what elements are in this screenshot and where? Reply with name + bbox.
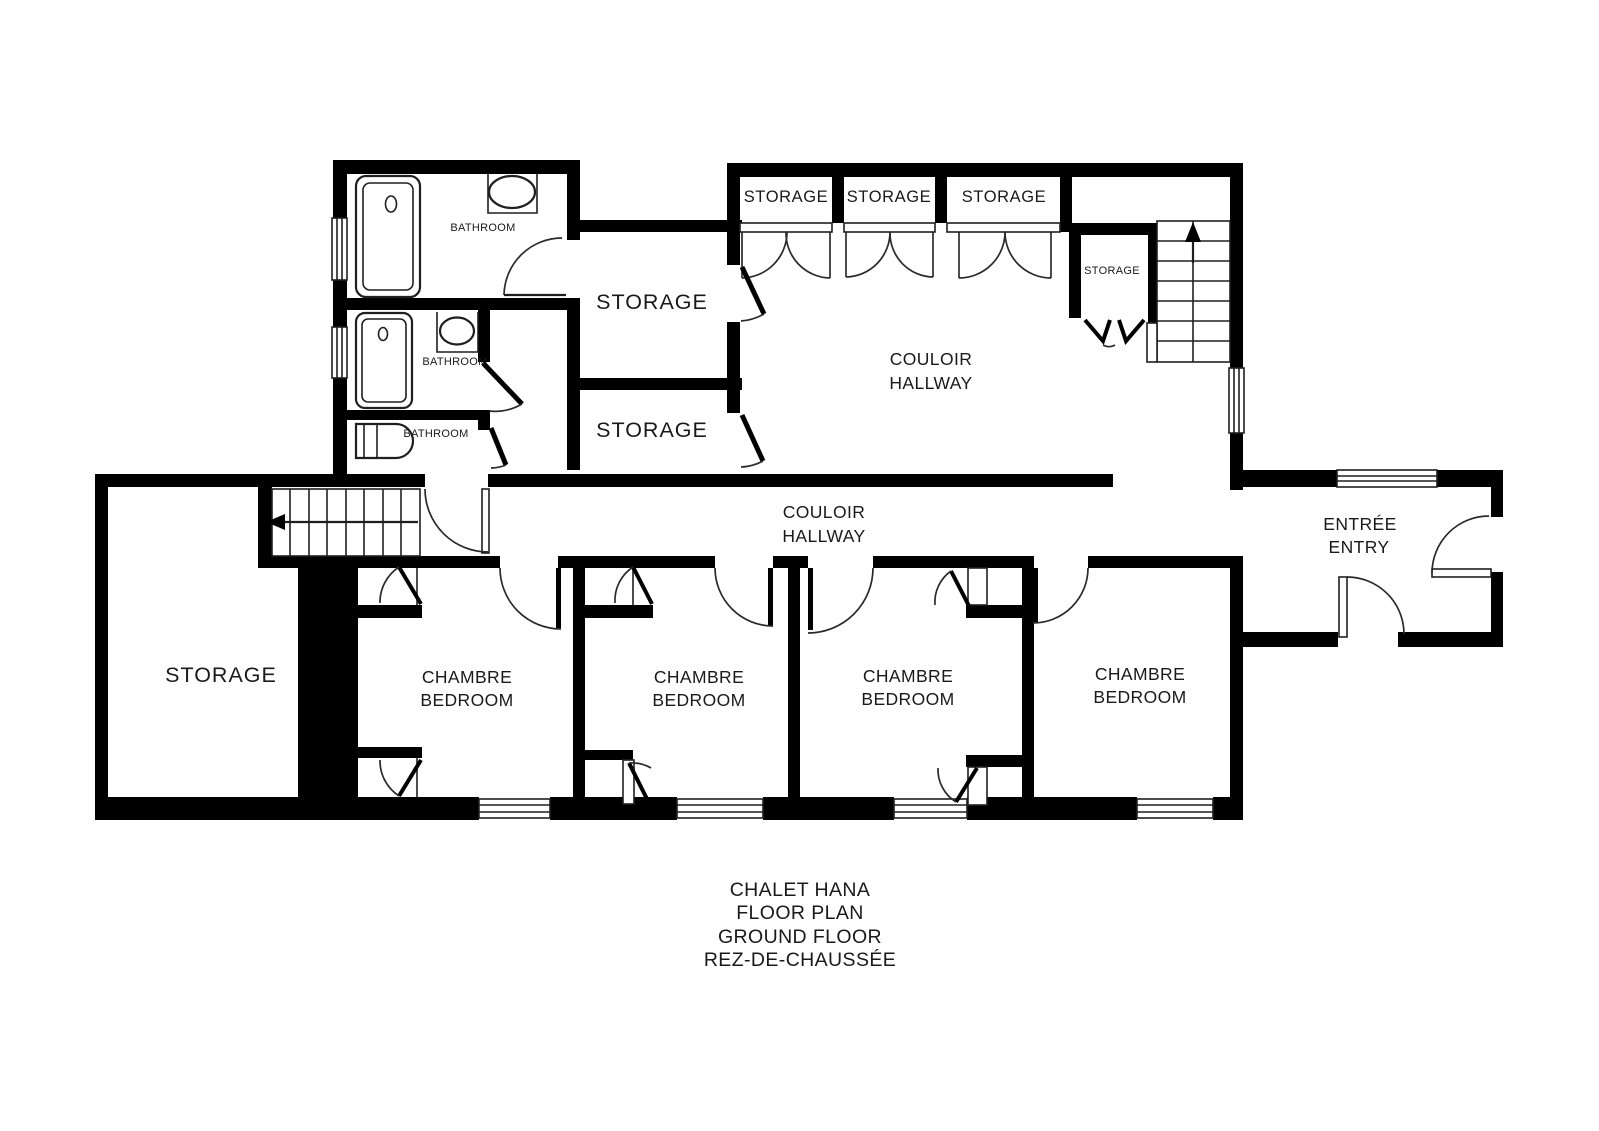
label-storage-lower: STORAGE xyxy=(596,418,708,442)
window-entry-top xyxy=(1337,470,1437,487)
label-entry-2: ENTRY xyxy=(1329,537,1390,557)
label-storage-left: STORAGE xyxy=(165,663,277,687)
bathtub-top xyxy=(356,176,420,297)
label-bathroom-middle: BATHROOM xyxy=(422,356,487,368)
title-line-1: CHALET HANA xyxy=(730,879,871,901)
bathroom-middle-door xyxy=(483,363,522,411)
label-bedroom-3-l2: BEDROOM xyxy=(861,689,954,709)
stair-jamb xyxy=(1147,323,1157,362)
title-line-2: FLOOR PLAN xyxy=(736,902,864,924)
label-bedroom-4-l2: BEDROOM xyxy=(1093,687,1186,707)
closet-2-double-door xyxy=(844,223,935,277)
label-hallway-upper-2: HALLWAY xyxy=(889,373,972,393)
small-storage-bifold-door xyxy=(1085,320,1144,347)
window-bedroom-2 xyxy=(677,799,763,818)
window-bedroom-1 xyxy=(479,799,550,818)
sink-top xyxy=(488,174,537,213)
label-bathroom-top: BATHROOM xyxy=(450,222,515,234)
window-bedroom-4 xyxy=(1137,799,1213,818)
label-entry-1: ENTRÉE xyxy=(1323,514,1396,534)
title-block: CHALET HANA FLOOR PLAN GROUND FLOOR REZ-… xyxy=(704,879,896,971)
stair-arrow-up xyxy=(1185,222,1201,242)
label-bedroom-2-l1: CHAMBRE xyxy=(654,667,744,687)
window-left-lower xyxy=(332,327,347,378)
stairs-main-hallway xyxy=(266,489,420,556)
label-closet-1: STORAGE xyxy=(744,188,829,206)
storage-upper-door xyxy=(741,267,764,321)
title-line-3: GROUND FLOOR xyxy=(718,926,882,948)
closet-3-double-door xyxy=(947,223,1060,278)
floor-plan-page: BATHROOM BATHROOM BATHROOM STORAGE STORA… xyxy=(0,0,1599,1131)
label-bedroom-4-l1: CHAMBRE xyxy=(1095,664,1185,684)
bedroom-2-closet-doors xyxy=(615,567,652,804)
bedroom-4-door xyxy=(1033,568,1088,623)
hallway-corridor-door xyxy=(425,489,489,553)
entry-front-door xyxy=(1432,516,1491,577)
bedroom-2-door xyxy=(715,568,773,626)
label-storage-upper: STORAGE xyxy=(596,290,708,314)
bathtub-middle xyxy=(356,313,412,408)
bathroom-top-door xyxy=(504,238,566,295)
label-closet-2: STORAGE xyxy=(847,188,932,206)
label-closet-3: STORAGE xyxy=(962,188,1047,206)
window-right-stair xyxy=(1229,368,1244,433)
label-hallway-upper-1: COULOIR xyxy=(890,349,973,369)
label-hallway-main-1: COULOIR xyxy=(783,502,866,522)
label-storage-small: STORAGE xyxy=(1084,265,1140,277)
bedroom-1-closet-doors xyxy=(380,567,421,797)
label-bedroom-2-l2: BEDROOM xyxy=(652,690,745,710)
label-hallway-main-2: HALLWAY xyxy=(782,526,865,546)
bedroom-1-door xyxy=(500,568,561,629)
storage-lower-door xyxy=(741,415,763,467)
title-line-4: REZ-DE-CHAUSSÉE xyxy=(704,948,896,971)
label-bedroom-3-l1: CHAMBRE xyxy=(863,666,953,686)
window-left-upper xyxy=(332,218,347,280)
floor-plan-canvas: BATHROOM BATHROOM BATHROOM STORAGE STORA… xyxy=(0,0,1599,1131)
label-bathroom-lower: BATHROOM xyxy=(403,428,468,440)
bathroom-lower-door xyxy=(491,428,506,468)
solid-wall-mass xyxy=(298,556,358,797)
bedroom-3-closet-doors xyxy=(935,568,987,805)
stairs-upper-hallway xyxy=(1147,221,1230,362)
label-bedroom-1-l1: CHAMBRE xyxy=(422,667,512,687)
label-bedroom-1-l2: BEDROOM xyxy=(420,690,513,710)
sink-middle xyxy=(437,312,478,352)
entry-bottom-door xyxy=(1339,577,1404,637)
bedroom-3-door xyxy=(808,568,873,633)
closet-1-double-door xyxy=(740,223,832,278)
